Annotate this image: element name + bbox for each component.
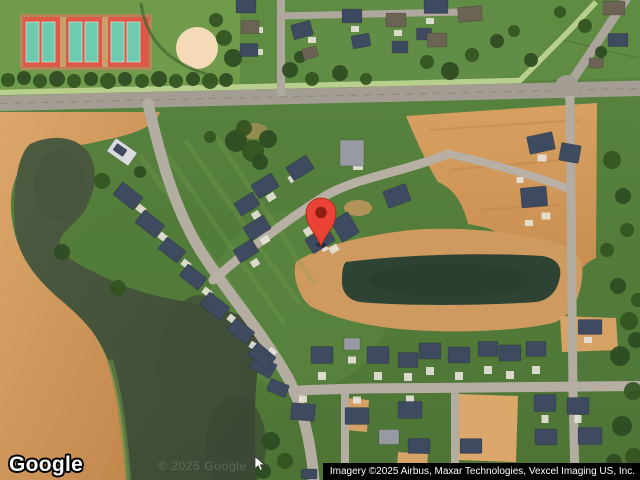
google-logo[interactable]: Google	[9, 453, 83, 477]
house-roof	[589, 58, 603, 68]
house-roof	[345, 408, 369, 425]
house-roof	[408, 439, 430, 454]
house-roof	[419, 343, 441, 359]
tree	[54, 244, 70, 260]
house-roof	[301, 469, 317, 479]
driveway-pad	[455, 372, 463, 380]
pond-shading	[370, 263, 530, 297]
house-roof	[520, 186, 548, 208]
tree	[282, 62, 298, 78]
house-roof	[311, 347, 333, 364]
house-roof	[379, 430, 399, 445]
house-roof	[290, 402, 315, 421]
house-roof	[236, 0, 256, 13]
house-roof	[398, 353, 418, 368]
house-roof	[608, 34, 628, 47]
driveway-pad	[374, 372, 382, 380]
tree	[219, 73, 233, 87]
house-roof	[457, 5, 482, 22]
house-roof	[386, 13, 406, 27]
tree	[620, 223, 634, 237]
house-roof	[460, 439, 482, 454]
tree	[216, 30, 232, 46]
driveway-pad	[426, 18, 434, 24]
tree	[600, 243, 614, 257]
tree	[209, 13, 223, 27]
house-roof	[448, 347, 470, 363]
tree	[252, 154, 268, 170]
tree	[259, 130, 277, 148]
house-roof	[340, 140, 364, 166]
road-intersection	[555, 75, 579, 99]
tree	[169, 74, 183, 88]
tree	[1, 73, 15, 87]
tree	[33, 74, 47, 88]
tree	[236, 120, 252, 136]
tree	[610, 278, 626, 294]
tree	[595, 46, 607, 58]
tree	[17, 71, 31, 85]
map-canvas[interactable]: © 2025 Google Google Imagery ©2025 Airbu…	[0, 0, 640, 480]
house-roof	[567, 398, 589, 415]
tree	[420, 55, 434, 69]
driveway-pad	[517, 177, 524, 183]
house-roof	[578, 428, 602, 445]
pond-shading	[34, 150, 86, 220]
house-roof	[534, 395, 556, 412]
street-south-horizontal	[289, 386, 640, 391]
tree	[67, 74, 81, 88]
tree	[134, 166, 146, 178]
driveway-pad	[404, 373, 412, 381]
tree	[49, 71, 65, 87]
house-roof	[241, 21, 259, 34]
tree	[305, 72, 319, 86]
tree	[603, 151, 621, 169]
driveway-pad	[542, 213, 551, 220]
house-roof	[367, 347, 389, 364]
tree	[554, 6, 566, 18]
tree	[94, 173, 110, 189]
tree	[490, 34, 504, 48]
driveway-pad	[575, 415, 582, 423]
tree	[151, 71, 167, 87]
tree	[224, 49, 242, 67]
house-roof	[427, 33, 447, 47]
tree	[508, 25, 520, 37]
driveway-pad	[538, 155, 547, 162]
driveway-pad	[348, 357, 356, 364]
house-roof	[392, 41, 408, 53]
house-roof	[351, 33, 371, 49]
house-roof	[578, 320, 602, 335]
house-roof	[478, 342, 498, 357]
driveway-pad	[299, 396, 307, 403]
house-roof	[535, 429, 557, 445]
imagery-attribution: Imagery ©2025 Airbus, Maxar Technologies…	[323, 463, 640, 480]
driveway-pad	[525, 220, 533, 226]
tree	[110, 280, 126, 296]
driveway-pad	[542, 415, 549, 423]
tree	[332, 65, 348, 81]
tree	[360, 73, 372, 85]
tree	[100, 73, 116, 89]
driveway-pad	[484, 366, 492, 374]
driveway-pad	[353, 397, 361, 404]
driveway-pad	[318, 372, 326, 380]
house-roof	[398, 402, 422, 419]
tennis-courts	[20, 14, 152, 70]
satellite-imagery	[0, 0, 640, 480]
google-watermark: © 2025 Google	[158, 459, 247, 473]
driveway-pad	[506, 371, 514, 379]
tree	[135, 74, 149, 88]
tree	[118, 72, 132, 86]
tree	[84, 72, 98, 86]
house-roof	[344, 338, 360, 350]
tree	[204, 131, 216, 143]
house-roof	[240, 44, 258, 57]
pin-inner-circle	[315, 207, 327, 219]
tree	[441, 62, 459, 80]
house-roof	[603, 1, 625, 15]
driveway-pad	[394, 30, 402, 36]
driveway-pad	[351, 26, 359, 32]
tree	[620, 312, 638, 330]
tree	[615, 188, 631, 204]
house-roof	[424, 0, 448, 14]
driveway-pad	[426, 367, 434, 375]
tree	[465, 48, 479, 62]
tree	[277, 453, 293, 469]
tree	[612, 416, 632, 436]
cursor-arrow-icon	[254, 456, 268, 472]
mouse-cursor	[254, 456, 268, 472]
driveway-pad	[308, 37, 316, 43]
tree	[262, 432, 280, 450]
tree	[578, 19, 592, 33]
tree	[202, 73, 218, 89]
house-roof	[342, 9, 362, 23]
driveway-pad	[584, 337, 592, 343]
house-roof	[499, 345, 521, 361]
tree	[524, 53, 538, 67]
tree	[186, 72, 200, 86]
house-roof	[526, 342, 546, 357]
house-roof	[559, 142, 582, 163]
driveway-pad	[532, 366, 540, 374]
tree	[610, 346, 630, 366]
